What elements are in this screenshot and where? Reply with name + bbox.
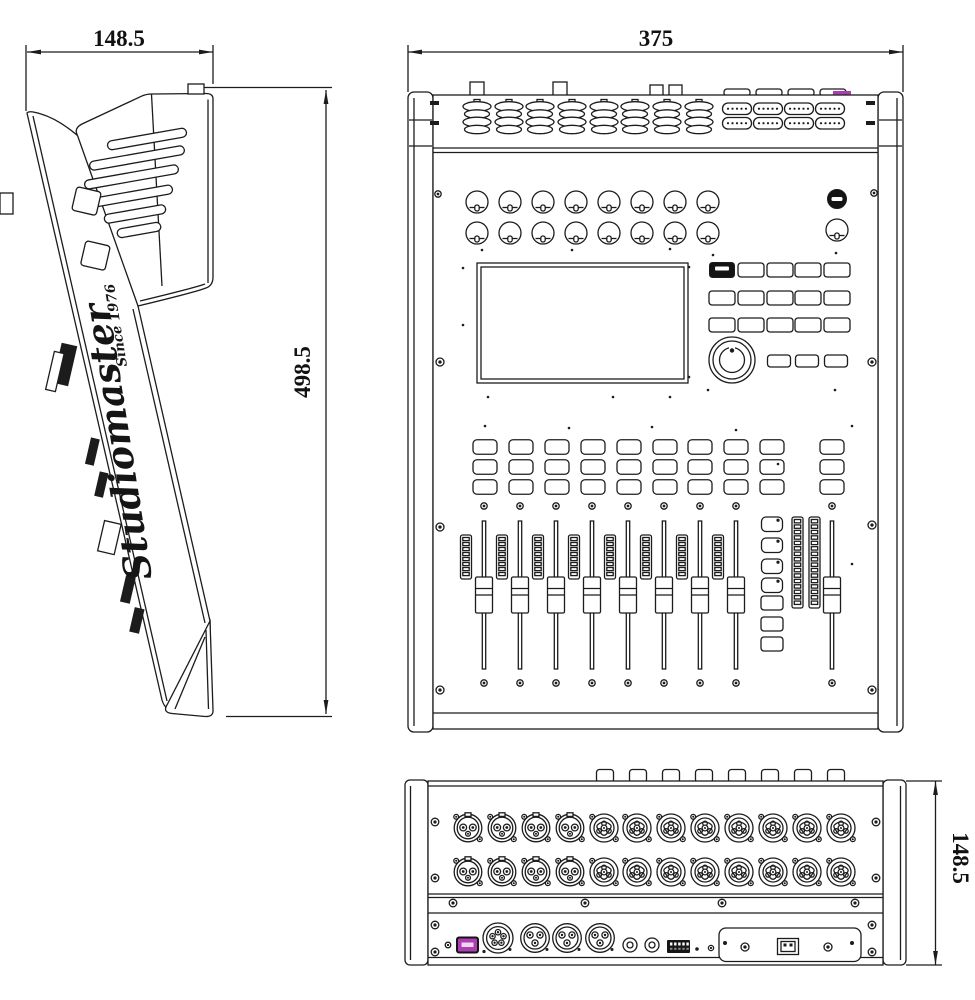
screw-center — [870, 688, 873, 691]
screw-center — [479, 882, 481, 884]
pilot-dot — [777, 463, 780, 466]
channel-button — [688, 440, 712, 455]
channel-button — [509, 440, 533, 455]
dimension-arrowhead — [199, 50, 213, 55]
channel-button — [820, 460, 844, 475]
screw-center — [874, 820, 877, 823]
channel-button — [581, 480, 605, 495]
screw-center — [750, 838, 752, 840]
screw-center — [489, 860, 491, 862]
soft-button — [709, 318, 735, 332]
screw-center — [873, 192, 876, 195]
soft-button — [824, 263, 850, 277]
screw-center — [750, 882, 752, 884]
screw-center — [519, 505, 522, 508]
screw-center — [433, 876, 436, 879]
master-encoder — [709, 337, 755, 383]
channel-button — [760, 440, 784, 455]
pilot-dot — [482, 950, 485, 953]
screw-center — [658, 816, 660, 818]
screw-center — [726, 860, 728, 862]
screw-center — [627, 682, 630, 685]
screw-center — [433, 923, 436, 926]
pilot-dot — [509, 948, 512, 951]
screw-center — [437, 193, 440, 196]
screw-center — [438, 360, 441, 363]
usb-port-top-glimpse — [833, 91, 851, 94]
screw-center — [853, 901, 856, 904]
edge-slot — [430, 121, 439, 125]
screw-center — [874, 876, 877, 879]
screw-center — [716, 838, 718, 840]
soft-button — [767, 318, 793, 332]
channel-button — [653, 460, 677, 475]
rear-tab — [553, 82, 567, 96]
channel-button — [509, 460, 533, 475]
xlr-top-profile — [621, 100, 649, 134]
soft-button — [824, 318, 850, 332]
side-tab — [80, 241, 110, 271]
screw-center — [870, 950, 873, 953]
pilot-dot — [611, 948, 614, 951]
soft-button — [795, 263, 821, 277]
screw-center — [870, 360, 873, 363]
xlr-male-connector — [521, 924, 550, 953]
dimension-arrowhead — [889, 50, 903, 55]
top-view: 375 — [408, 26, 903, 732]
soft-button — [795, 291, 821, 305]
xlr-top-profile — [590, 100, 618, 134]
screw-center — [627, 505, 630, 508]
screw-center — [455, 816, 457, 818]
dimension-arrowhead — [933, 951, 938, 965]
screw-center — [615, 882, 617, 884]
screw-center — [519, 682, 522, 685]
pilot-dot — [462, 324, 465, 327]
screw-center — [591, 860, 593, 862]
top-edge-tabs — [470, 82, 851, 96]
layer-button — [762, 538, 783, 553]
right-end-cheek — [878, 92, 903, 732]
pilot-dot — [578, 948, 581, 951]
channel-button — [545, 480, 569, 495]
dimension-side-depth: 498.5 — [198, 88, 332, 717]
channel-button — [473, 460, 497, 475]
side-tab — [72, 187, 102, 216]
rear-view: 148.5 — [405, 770, 973, 966]
pilot-dot — [850, 941, 854, 945]
soft-button — [767, 263, 793, 277]
xlr-male-connector — [586, 924, 615, 953]
touchscreen — [477, 263, 688, 383]
xlr-top-profile — [685, 100, 713, 134]
layer-button — [762, 578, 783, 593]
channel-button — [760, 460, 784, 475]
screw-center — [513, 838, 515, 840]
screw-center — [720, 901, 723, 904]
screw-center — [624, 816, 626, 818]
pilot-dot — [481, 249, 484, 252]
left-end-cheek — [405, 780, 428, 965]
channel-button — [581, 440, 605, 455]
pilot-dot — [568, 427, 571, 430]
dark-button — [761, 637, 783, 651]
screw-center — [794, 816, 796, 818]
screw-center — [523, 860, 525, 862]
xlr-top-profile — [463, 100, 491, 134]
screw-center — [557, 816, 559, 818]
pilot-dot — [735, 429, 738, 432]
rear-tab — [188, 84, 204, 94]
dip-switch — [667, 940, 690, 953]
screw-center — [591, 682, 594, 685]
screw-center — [831, 682, 834, 685]
dimension-arrowhead — [408, 50, 422, 55]
screw-center — [663, 505, 666, 508]
screw-center — [870, 523, 873, 526]
pilot-dot — [462, 267, 465, 270]
side-connector-tab — [0, 193, 13, 214]
dimension-arrowhead — [324, 90, 329, 104]
screw-center — [433, 820, 436, 823]
pilot-dot — [612, 396, 615, 399]
edge-slot — [866, 101, 875, 105]
xlr-male-connector — [553, 924, 582, 953]
screw-center — [726, 816, 728, 818]
screw-center — [615, 838, 617, 840]
dark-button — [761, 617, 783, 631]
screw-center — [818, 838, 820, 840]
screw-center — [583, 901, 586, 904]
channel-button — [688, 460, 712, 475]
dark-knob-slot — [832, 197, 843, 201]
usb-a-port — [457, 938, 478, 953]
screw-center — [852, 838, 854, 840]
screw-center — [716, 882, 718, 884]
function-button — [796, 355, 819, 367]
screw-center — [581, 838, 583, 840]
screw-center — [831, 505, 834, 508]
layer-button — [762, 517, 783, 532]
screw-center — [682, 882, 684, 884]
screw-center — [794, 860, 796, 862]
screw-center — [760, 816, 762, 818]
dimension-label-rear-height: 148.5 — [948, 832, 973, 884]
pilot-dot — [571, 249, 574, 252]
channel-button — [688, 480, 712, 495]
edge-slot — [430, 101, 439, 105]
screw-center — [555, 682, 558, 685]
channel-button — [545, 440, 569, 455]
screw-center — [743, 945, 746, 948]
pilot-dot — [723, 941, 727, 945]
channel-button — [617, 480, 641, 495]
screw-center — [818, 882, 820, 884]
screw-center — [547, 838, 549, 840]
screw-center — [658, 860, 660, 862]
dimension-arrowhead — [324, 700, 329, 714]
pilot-dot — [712, 254, 715, 257]
soft-button — [824, 291, 850, 305]
encoder-pointer — [730, 348, 734, 352]
xlr-5pin-connector — [483, 923, 513, 953]
screw-center — [735, 682, 738, 685]
channel-button — [724, 460, 748, 475]
screw-center — [648, 882, 650, 884]
screw-center — [663, 682, 666, 685]
side-view: 148.5 498.5 — [0, 26, 332, 717]
screw-center — [489, 816, 491, 818]
screw-center — [710, 947, 712, 949]
channel-button — [509, 480, 533, 495]
screw-center — [826, 945, 829, 948]
channel-button — [724, 480, 748, 495]
screw-center — [682, 838, 684, 840]
channel-button — [653, 480, 677, 495]
screw-center — [483, 682, 486, 685]
screw-center — [555, 505, 558, 508]
soft-button — [738, 263, 764, 277]
edge-slot — [866, 121, 875, 125]
pilot-dot — [688, 376, 691, 379]
screw-center — [828, 816, 830, 818]
screw-center — [648, 838, 650, 840]
soft-button — [738, 318, 764, 332]
screw-center — [692, 816, 694, 818]
dimension-arrowhead — [933, 781, 938, 795]
mixer-three-view-drawing: 148.5 498.5 — [0, 0, 975, 1000]
screw-center — [591, 505, 594, 508]
screw-center — [455, 860, 457, 862]
soft-button — [738, 291, 764, 305]
pilot-dot — [851, 425, 854, 428]
xlr-top-profile — [558, 100, 586, 134]
xlr-top-profile — [495, 100, 523, 134]
screw-center — [438, 688, 441, 691]
rear-tab — [470, 82, 484, 96]
channel-button — [724, 440, 748, 455]
pilot-dot — [484, 425, 487, 428]
channel-button — [760, 480, 784, 495]
soft-button — [767, 291, 793, 305]
channel-button — [581, 460, 605, 475]
screw-center — [547, 882, 549, 884]
left-end-cheek — [408, 92, 433, 732]
screw-center — [784, 838, 786, 840]
soft-button — [709, 291, 735, 305]
channel-button — [617, 460, 641, 475]
pilot-dot — [834, 389, 837, 392]
soft-button — [795, 318, 821, 332]
channel-button — [820, 440, 844, 455]
top-panel-face — [433, 95, 878, 729]
channel-button — [473, 440, 497, 455]
screw-center — [784, 882, 786, 884]
screw-center — [523, 816, 525, 818]
pilot-dot — [546, 948, 549, 951]
screw-center — [870, 923, 873, 926]
screw-center — [624, 860, 626, 862]
screw-center — [557, 860, 559, 862]
screw-center — [692, 860, 694, 862]
screw-center — [852, 882, 854, 884]
screw-center — [433, 950, 436, 953]
screw-center — [699, 682, 702, 685]
usb-a-port — [710, 263, 735, 278]
pilot-dot — [835, 252, 838, 255]
channel-button — [545, 460, 569, 475]
dark-button — [761, 596, 783, 610]
screw-center — [581, 882, 583, 884]
channel-button — [473, 480, 497, 495]
screw-center — [438, 525, 441, 528]
screw-center — [447, 944, 449, 946]
xlr-top-profile — [653, 100, 681, 134]
screw-center — [699, 505, 702, 508]
screw-center — [760, 860, 762, 862]
screw-center — [483, 505, 486, 508]
screw-center — [735, 505, 738, 508]
technical-drawing-page: 148.5 498.5 — [0, 0, 975, 1000]
dimension-label-side-depth: 498.5 — [290, 346, 315, 398]
pilot-dot — [688, 266, 691, 269]
channel-button — [617, 440, 641, 455]
right-end-cheek — [883, 780, 906, 965]
dimension-label-top-width: 375 — [639, 26, 674, 51]
pilot-dot — [669, 248, 672, 251]
side-knob-profile — [129, 607, 144, 634]
display-area — [477, 263, 688, 383]
encoder-bezel — [709, 337, 755, 383]
pilot-dot — [851, 563, 854, 566]
dimension-rear-height: 148.5 — [906, 781, 973, 965]
pilot-dot — [707, 389, 710, 392]
xlr-top-profile — [526, 100, 554, 134]
layer-button — [762, 559, 783, 574]
function-button — [825, 355, 848, 367]
channel-button — [820, 480, 844, 495]
screw-center — [828, 860, 830, 862]
screw-center — [591, 816, 593, 818]
channel-button — [653, 440, 677, 455]
pilot-dot — [669, 396, 672, 399]
screw-center — [479, 838, 481, 840]
dimension-label-side-width: 148.5 — [93, 26, 145, 51]
pilot-dot — [695, 947, 699, 951]
dimension-arrowhead — [27, 50, 41, 55]
screw-center — [513, 882, 515, 884]
pilot-dot — [651, 426, 654, 429]
function-button — [768, 355, 791, 367]
screw-center — [451, 901, 454, 904]
phones-knob-group — [828, 190, 847, 209]
pilot-dot — [487, 396, 490, 399]
